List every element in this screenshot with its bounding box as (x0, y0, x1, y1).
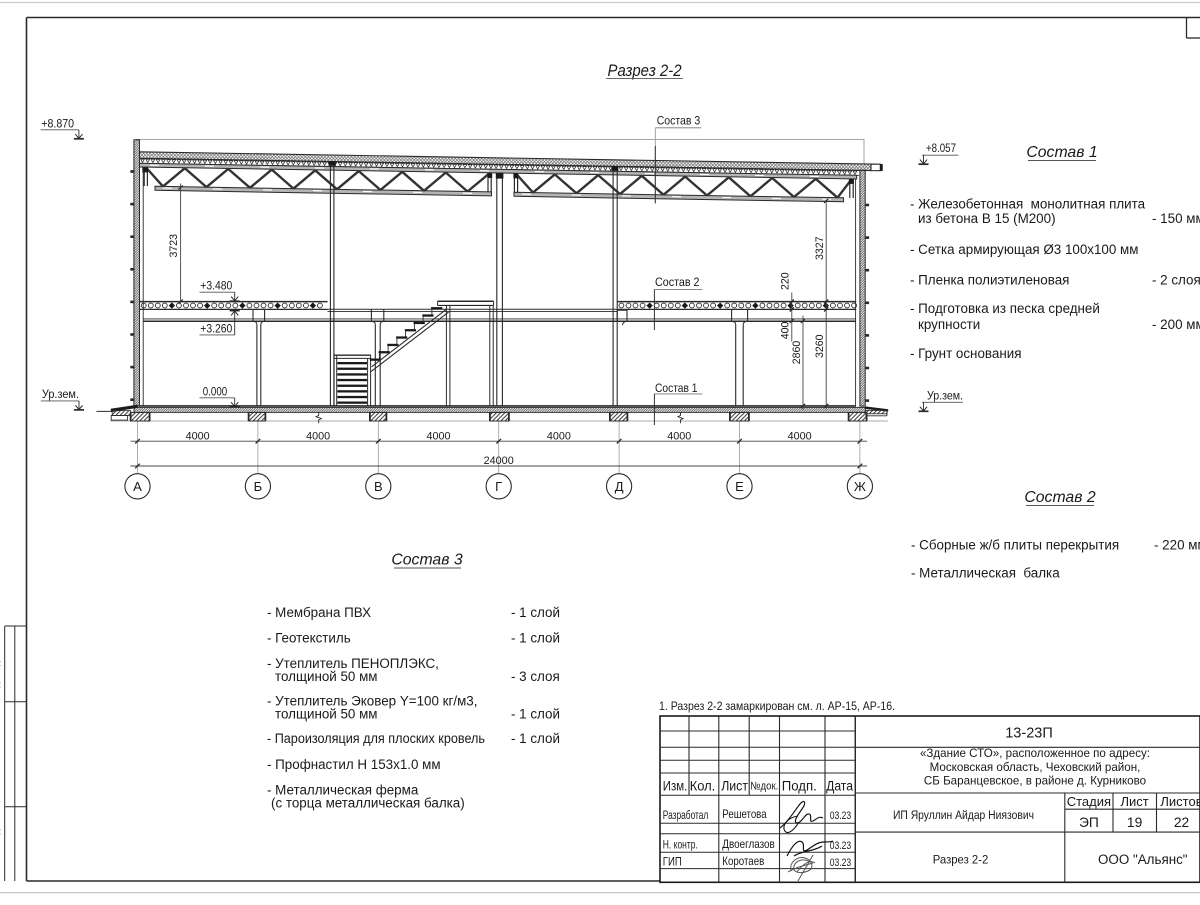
svg-text:Лист: Лист (721, 779, 748, 795)
svg-text:№док.: №док. (750, 781, 778, 793)
svg-text:Лист: Лист (1120, 794, 1148, 809)
svg-text:Разрез 2-2: Разрез 2-2 (608, 61, 683, 80)
svg-text:Разрез 2-2: Разрез 2-2 (933, 853, 989, 867)
svg-text:В: В (374, 479, 383, 494)
svg-text:- Геотекстиль: - Геотекстиль (267, 631, 351, 646)
svg-text:СБ Баранцевское, в районе д. К: СБ Баранцевское, в районе д. Курниково (924, 774, 1146, 787)
svg-text:4000: 4000 (306, 430, 330, 442)
svg-text:ГИП: ГИП (663, 855, 682, 869)
svg-text:- Железобетонная монолитная п: - Железобетонная монолитная плита (910, 197, 1146, 212)
svg-text:- 220 мм: - 220 мм (1154, 538, 1200, 553)
svg-text:Московская область, Чеховский: Московская область, Чеховский район, (930, 761, 1141, 774)
svg-text:- Пленка полиэтиленовая: - Пленка полиэтиленовая (910, 273, 1069, 288)
svg-text:- Сетка армирующая Ø3 100x100: - Сетка армирующая Ø3 100x100 мм (910, 242, 1138, 257)
svg-text:22: 22 (1174, 815, 1189, 830)
svg-text:Листов: Листов (1160, 794, 1200, 809)
svg-text:+3.480: +3.480 (200, 279, 232, 293)
svg-text:(с торца металлическая балка): (с торца металлическая балка) (271, 796, 465, 811)
svg-text:Разработал: Разработал (663, 808, 709, 822)
svg-text:- 1 слой: - 1 слой (511, 707, 560, 722)
svg-text:Подп.: Подп. (782, 779, 817, 795)
svg-text:- Пароизоляция для плоских кро: - Пароизоляция для плоских кровель (267, 731, 485, 746)
svg-text:+3.260: +3.260 (200, 322, 232, 336)
svg-text:4000: 4000 (667, 430, 691, 442)
svg-text:толщиной 50 мм: толщиной 50 мм (275, 669, 378, 684)
svg-text:крупности: крупности (918, 317, 980, 332)
svg-text:- 3 слоя: - 3 слоя (511, 669, 560, 684)
svg-text:220: 220 (780, 272, 792, 290)
svg-text:+8.057: +8.057 (926, 141, 956, 155)
svg-text:ЭП: ЭП (1079, 815, 1099, 830)
svg-text:- Подготовка из песка средней: - Подготовка из песка средней (910, 301, 1100, 316)
svg-text:Б: Б (254, 479, 263, 494)
svg-text:толщиной 50 мм: толщиной 50 мм (275, 707, 378, 722)
svg-text:3723: 3723 (168, 234, 180, 258)
svg-text:ООО "Альянс": ООО "Альянс" (1098, 852, 1188, 867)
svg-text:19: 19 (1127, 815, 1143, 830)
svg-text:0.000: 0.000 (203, 385, 228, 399)
svg-text:4000: 4000 (426, 430, 450, 442)
svg-text:Г: Г (495, 479, 502, 494)
svg-text:Состав 2: Состав 2 (655, 275, 700, 289)
svg-text:Н. контр.: Н. контр. (663, 838, 698, 852)
svg-text:- 1 слой: - 1 слой (511, 605, 560, 620)
svg-text:4000: 4000 (547, 430, 571, 442)
svg-text:13-23П: 13-23П (1005, 726, 1053, 742)
svg-text:- 200 мм: - 200 мм (1152, 317, 1200, 332)
svg-text:Двоеглазов: Двоеглазов (722, 837, 775, 851)
svg-text:- 1 слой: - 1 слой (511, 731, 560, 746)
svg-text:Состав 3: Состав 3 (391, 552, 462, 569)
svg-text:- Мембрана ПВХ: - Мембрана ПВХ (267, 605, 371, 620)
svg-text:Е: Е (735, 479, 744, 494)
svg-text:Состав 1: Состав 1 (1026, 144, 1097, 161)
svg-text:- Профнастил Н 153х1.0 мм: - Профнастил Н 153х1.0 мм (267, 757, 441, 772)
svg-text:3327: 3327 (814, 236, 826, 260)
svg-text:- 1 слой: - 1 слой (511, 631, 560, 646)
svg-text:Кол.: Кол. (690, 779, 716, 795)
svg-text:Подп. и дата: Подп. и дата (0, 648, 1, 698)
svg-text:из бетона В 15 (М200): из бетона В 15 (М200) (918, 211, 1056, 226)
svg-text:03.23: 03.23 (830, 810, 851, 822)
svg-text:«Здание СТО», расположенное по: «Здание СТО», расположенное по адресу: (920, 747, 1150, 760)
svg-text:4000: 4000 (788, 430, 812, 442)
svg-text:4000: 4000 (186, 430, 210, 442)
svg-text:- 150 мм: - 150 мм (1152, 211, 1200, 226)
svg-text:- 2 слоя: - 2 слоя (1152, 273, 1200, 288)
svg-text:03.23: 03.23 (830, 857, 851, 869)
svg-text:Стадия: Стадия (1067, 794, 1111, 809)
svg-text:Коротаев: Коротаев (722, 854, 764, 868)
svg-text:Д: Д (615, 479, 624, 494)
svg-text:А: А (133, 479, 142, 494)
svg-text:Состав 3: Состав 3 (657, 113, 701, 127)
svg-text:Дата: Дата (826, 779, 853, 795)
svg-text:- Сборные ж/б плиты перекрытия: - Сборные ж/б плиты перекрытия (911, 538, 1119, 553)
svg-text:Ур.зем.: Ур.зем. (927, 389, 963, 403)
svg-text:- Металлическая балка: - Металлическая балка (911, 566, 1060, 581)
svg-text:Ур.зем.: Ур.зем. (42, 387, 79, 401)
svg-text:24000: 24000 (484, 455, 514, 467)
svg-text:400: 400 (780, 322, 792, 340)
svg-text:1. Разрез 2-2 замаркирован см.: 1. Разрез 2-2 замаркирован см. л. АР-15,… (659, 699, 895, 713)
svg-text:- Грунт основания: - Грунт основания (910, 346, 1021, 361)
svg-text:Состав 1: Состав 1 (655, 381, 698, 395)
svg-text:Ж: Ж (854, 479, 866, 494)
svg-text:3260: 3260 (814, 334, 826, 358)
svg-text:Решетова: Решетова (722, 807, 766, 821)
svg-text:+8.870: +8.870 (41, 117, 74, 131)
svg-text:2860: 2860 (791, 341, 803, 365)
svg-text:Изм.: Изм. (663, 779, 688, 795)
svg-text:Инв. № подл.: Инв. № подл. (0, 822, 1, 875)
svg-text:ИП Яруллин Айдар Ниязович: ИП Яруллин Айдар Ниязович (893, 808, 1034, 822)
svg-text:Состав 2: Состав 2 (1024, 489, 1095, 506)
